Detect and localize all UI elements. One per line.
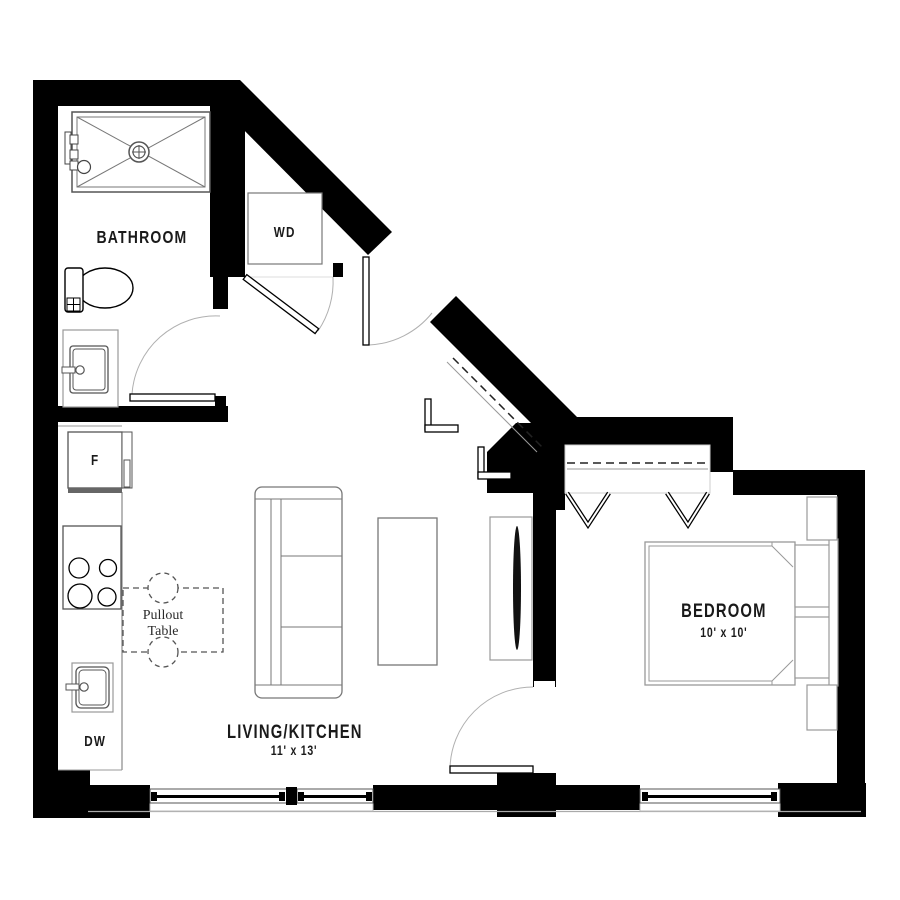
wall-bottom-2: [497, 773, 556, 817]
bedroom-window-cap-right: [771, 792, 777, 801]
jamb-cap-bath-door: [213, 309, 228, 315]
kitchen: [58, 426, 223, 770]
pullout-chair-top: [148, 573, 178, 603]
living-window-2-cap-left: [298, 792, 304, 801]
fridge-label: F: [91, 452, 99, 469]
sofa: [255, 487, 342, 698]
wall-corner-bl-2: [58, 785, 150, 818]
entry-closet-door-left-wing: [425, 425, 458, 432]
pillow-top: [795, 545, 830, 607]
burner-2: [100, 560, 117, 577]
refrigerator-handle: [124, 460, 130, 487]
coffee-table: [378, 518, 437, 665]
headboard: [829, 539, 838, 686]
bifold-door-right: [667, 493, 708, 525]
pullout-table-label-1: Pullout: [143, 608, 184, 623]
wall-right: [837, 495, 865, 790]
shower-valve-knob-2: [70, 150, 78, 159]
living-room-furniture: [255, 487, 532, 698]
wall-wd-jamb: [333, 263, 343, 277]
living-window-1-cap-right: [279, 792, 285, 801]
wall-top: [33, 80, 240, 106]
entry-closet-door-right-wing: [478, 472, 511, 479]
bedroom-dims: 10' x 10': [700, 625, 747, 641]
wall-bedroom-top: [565, 417, 733, 445]
wall-bedroom-topright: [733, 470, 865, 495]
wall-left: [33, 80, 58, 780]
entry-door-leaf: [363, 257, 369, 345]
burner-3: [68, 584, 92, 608]
living-window-sill: [150, 803, 373, 811]
living-window-2-cap-right: [366, 792, 372, 801]
toilet-bowl: [77, 268, 133, 308]
bedroom-door-leaf: [450, 766, 533, 773]
pullout-chair-bottom: [148, 637, 178, 667]
bathroom-fixtures: [62, 112, 210, 407]
window-mullion: [286, 787, 297, 805]
vanity-faucet-bar: [62, 367, 75, 373]
tv-console: [490, 517, 532, 660]
wd-door-leaf: [243, 275, 318, 334]
nightstand-bottom: [807, 685, 837, 730]
entry-door-arc: [369, 313, 432, 345]
wall-bedroom-step: [710, 445, 733, 472]
living-kitchen-dims: 11' x 13': [271, 743, 318, 759]
burner-4: [98, 588, 116, 606]
pullout-table-label-2: Table: [148, 624, 179, 639]
living-window-1-cap-left: [151, 792, 157, 801]
kitchen-faucet-bar: [66, 684, 79, 690]
dishwasher-label: DW: [84, 733, 106, 750]
wall-bath-door-upper: [213, 277, 228, 309]
wd-door-arc: [318, 277, 333, 331]
shower-head-icon: [78, 161, 91, 174]
bedroom-window-sill: [640, 803, 780, 811]
wd-label: WD: [274, 224, 296, 241]
nightstand-top: [807, 497, 837, 540]
shower-head-mount: [70, 161, 78, 170]
bifold-door-left-inner: [567, 493, 609, 525]
jamb-cap-bedroom-door: [534, 681, 555, 687]
shower-valve-knob-1: [70, 135, 78, 144]
pillow-bottom: [795, 617, 830, 678]
bathroom-label: BATHROOM: [97, 227, 188, 247]
tv-screen: [513, 526, 521, 650]
wall-bathroom-south: [58, 406, 228, 422]
floor-plan-svg: BATHROOM WD F DW LIVING/KITCHEN 11' x 13…: [0, 0, 900, 900]
bedroom-closet: [565, 445, 710, 525]
living-kitchen-label: LIVING/KITCHEN: [227, 721, 363, 742]
bedroom-door-arc: [450, 687, 533, 770]
vanity-faucet-knob: [76, 366, 84, 374]
bifold-door-left: [567, 493, 609, 525]
bedroom-label: BEDROOM: [681, 600, 766, 621]
wall-living-bedroom: [533, 493, 556, 687]
bedroom-window-cap-left: [642, 792, 648, 801]
kitchen-faucet-knob: [80, 683, 88, 691]
refrigerator-base-bar: [68, 488, 122, 493]
bathroom-door-leaf: [130, 394, 215, 401]
wall-bathroom-right: [210, 106, 245, 277]
floor-plan: BATHROOM WD F DW LIVING/KITCHEN 11' x 13…: [0, 0, 900, 900]
wall-bath-door-hinge: [215, 396, 226, 406]
burner-1: [69, 558, 89, 578]
wall-bottom-3: [553, 785, 640, 810]
wall-bottom-1: [373, 785, 500, 810]
bathroom-door-arc: [132, 316, 220, 394]
